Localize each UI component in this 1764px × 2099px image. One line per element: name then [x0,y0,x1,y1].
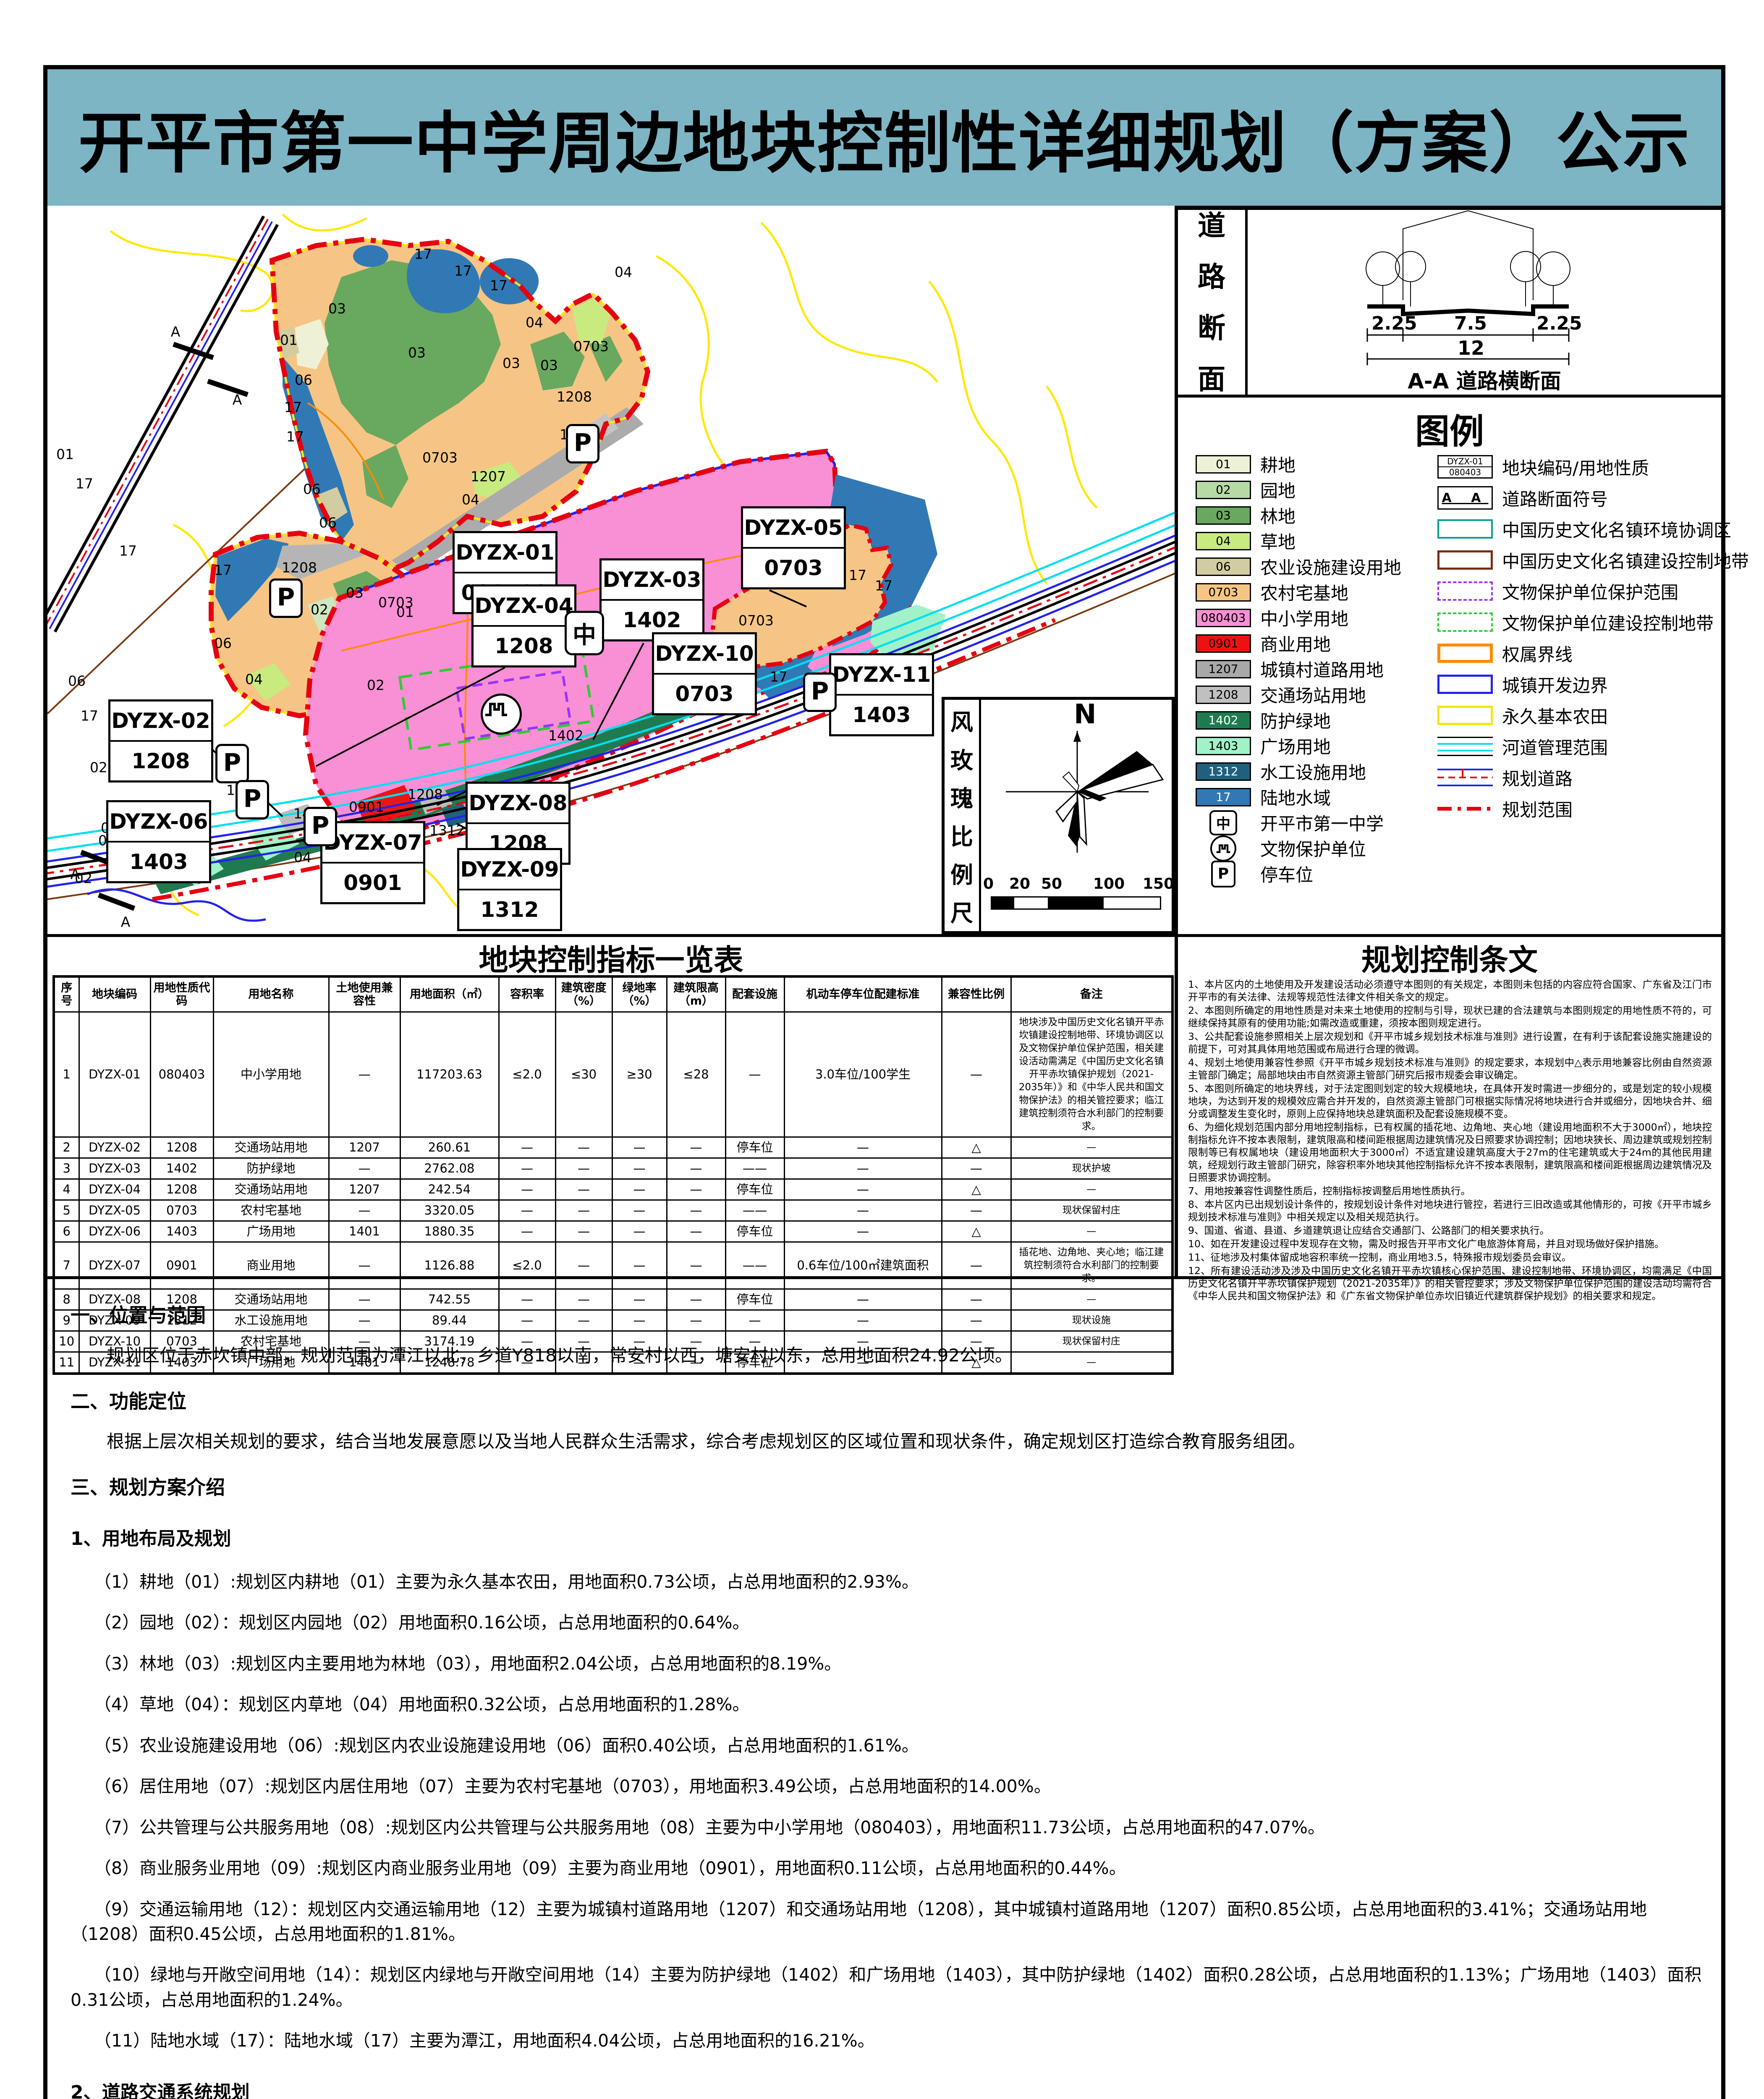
area-code-label: 01 [280,333,298,347]
dim-total-text: 12 [1458,337,1484,359]
area-code-label: 03 [328,302,346,316]
area-code-label: 1312 [429,824,465,838]
plot-code: DYZX-05 [743,508,844,549]
area-code-label: A [71,867,80,881]
heritage-protect-swatch [1437,581,1493,601]
legend-item-label: 水工设施用地 [1260,759,1366,784]
constr-control-swatch [1437,550,1493,570]
area-code-label: 0703 [573,340,609,353]
legend-item: 1403 广场用地 [1196,733,1437,759]
legend-title: 图例 [1178,403,1721,453]
legend-color-swatch: 1403 [1196,737,1251,755]
parking-icon: P [215,744,249,783]
plot-use-code: 0703 [654,675,755,713]
legend-item-label: 林地 [1260,503,1296,528]
legend-landuse-list: 01 耕地 02 园地 03 林地 [1196,451,1437,810]
title-band: 开平市第一中学周边地块控制性详细规划（方案）公示 [47,69,1721,210]
parking-icon: P [803,673,837,712]
legend-item: 02 园地 [1196,477,1437,503]
plot-use-code: 1208 [110,742,211,780]
plot-label-box: DYZX-02 1208 [108,699,213,783]
area-code-label: 17 [414,247,432,261]
landuse-subheading: 1、用地布局及规划 [71,1523,1704,1550]
road-subheading: 2、道路交通系统规划 [71,2077,1704,2099]
provision-item: 3、公共配套设施参照相关上层次规划和《开平市城乡规划技术标准与准则》进行设置，在… [1188,1030,1712,1055]
planning-map: 0103030303171717171706060604040407030703… [47,206,1175,934]
road-section-caption: A-A 道路横断面 [1248,364,1721,395]
wind-rose-panel-label: 风玫瑰比例尺 [945,700,981,931]
legend-color-swatch: 03 [1196,506,1251,525]
provision-item: 7、用地按兼容性调整性质后，控制指标按调整后用地性质执行。 [1188,1185,1712,1197]
area-code-label: 17 [284,400,302,414]
env-coord-swatch [1437,519,1493,539]
landuse-item: （2）园地（02）：规划区内园地（02）用地面积0.16公顷，占总用地面积的0.… [71,1610,1704,1635]
area-code-label: 06 [303,482,321,496]
area-code-label: 1402 [548,729,584,743]
plot-use-code: 1403 [108,843,209,881]
plot-use-code: 0703 [743,549,844,587]
provision-item: 8、本片区内已出规划设计条件的，按规划设计条件对地块进行管控，若进行三旧改造或其… [1188,1198,1712,1223]
table-row: 7DYZX-07 0901商业用地 —1126.88 ≤2.0— —— ——0.… [54,1242,1173,1289]
legend-item-parking: P 停车位 [1196,861,1437,887]
area-code-label: 03 [346,586,364,600]
stream-line [87,890,266,921]
indicator-column-header: 配套设施 [725,976,784,1012]
indicator-column-header: 序号 [54,976,79,1012]
area-code-label: 17 [286,430,304,444]
area-code-label: A [171,325,181,339]
section3-heading: 三、规划方案介绍 [71,1472,1704,1500]
provision-item: 10、如在开发建设过程中发现存在文物，需及时报告开平市文化广电旅游体育局，并且对… [1188,1238,1712,1250]
table-row: 4DYZX-04 1208交通场站用地 1207242.54 —— —— 停车位… [54,1179,1173,1200]
indicator-column-header: 用地面积（㎡） [400,976,499,1012]
landuse-item: （6）居住用地（07）:规划区内居住用地（07）主要为农村宅基地（0703），用… [71,1774,1704,1799]
indicator-column-header: 建筑限高（m） [667,976,725,1012]
legend-color-swatch: 0703 [1196,583,1251,602]
legend-color-swatch: 0901 [1196,634,1251,653]
legend-item: 0901 商业用地 [1196,631,1437,656]
heritage-legend-icon [1210,835,1236,861]
area-code-label: 02 [311,603,328,617]
indicator-column-header: 建筑密度（%） [555,976,612,1012]
area-code-label: 0703 [738,614,774,628]
indicator-column-header: 土地使用兼容性 [329,976,400,1012]
table-row: 2DYZX-02 1208交通场站用地 1207260.61 —— —— 停车位… [54,1137,1173,1158]
area-code-label: 03 [408,346,426,360]
area-code-label: 17 [490,279,508,293]
provision-item: 6、为细化规划范围内部分用地控制指标，已有权属的插花地、边角地、夹心地（建设用地… [1188,1121,1712,1184]
landuse-item: （11）陆地水域（17）：陆地水域（17）主要为潭江，用地面积4.04公顷，占总… [71,2028,1704,2053]
legend-item: 080403 中小学用地 [1196,605,1437,631]
plot-label-box: DYZX-03 1402 [599,558,704,641]
legend-item-heritage: 文物保护单位 [1196,835,1437,861]
provision-item: 9、国道、省道、县道、乡道建筑退让应结合交通部门、公路部门的相关要求执行。 [1188,1224,1712,1237]
planned-road-swatch [1437,768,1493,787]
plot-code: DYZX-08 [468,784,568,824]
dim-left-text: 2.25 [1371,313,1417,334]
provisions-list: 1、本片区内的土地使用及开发建设活动必须遵守本图则的有关规定，本图则未包括的内容… [1188,978,1712,1303]
ownership-swatch [1437,644,1493,663]
area-code-label: 04 [615,265,632,279]
legend-color-swatch: 1207 [1196,660,1251,678]
area-code-label: 04 [245,673,263,686]
area-code-label: 17 [214,563,232,577]
legend-item-label: 中小学用地 [1260,605,1348,631]
legend-item: 04 草地 [1196,528,1437,554]
plot-code: DYZX-10 [654,634,755,675]
legend-item: 03 林地 [1196,503,1437,528]
urban-boundary-swatch [1437,675,1493,694]
area-code-label: 01 [56,448,74,461]
section1-paragraph: 规划区位于赤坎镇中部，规划范围为潭江以北，乡道Y818以南，常安村以西，塘安村以… [71,1342,1704,1369]
landuse-item-list: （1）耕地（01）:规划区内耕地（01）主要为永久基本农田，用地面积0.73公顷… [71,1570,1704,2054]
legend-item-label: 农业设施建设用地 [1260,554,1401,579]
landuse-item: （5）农业设施建设用地（06）:规划区内农业设施建设用地（06）面积0.40公顷… [71,1733,1704,1758]
heritage-unit-icon [481,694,522,735]
north-label: N [1074,701,1097,730]
plot-label-box: DYZX-04 1208 [471,584,576,667]
scale-bar [991,896,1161,910]
area-code-label: 03 [540,359,558,372]
dim-mid-text: 7.5 [1454,313,1487,334]
legend-color-swatch: 02 [1196,481,1251,499]
area-code-label: 17 [119,544,137,558]
indicator-column-header: 绿地率（%） [612,976,667,1012]
indicator-column-header: 备注 [1011,976,1173,1012]
plot-label-box: DYZX-05 0703 [741,506,846,589]
section2-paragraph: 根据上层次相关规划的要求，结合当地发展意愿以及当地人民群众生活需求，综合考虑规划… [71,1428,1704,1455]
legend-item-label: 农村宅基地 [1260,579,1348,605]
indicator-table-title: 地块控制指标一览表 [47,937,1175,979]
area-code-label: 0703 [422,451,458,465]
area-code-label: A [121,915,131,929]
landuse-item: （10）绿地与开敞空间用地（14）：规划区内绿地与开敞空间用地（14）主要为防护… [71,1963,1704,2013]
plot-use-code: 0901 [322,864,423,902]
area-code-label: 04 [526,316,543,330]
legend-color-swatch: 17 [1196,788,1251,806]
plot-label-box: DYZX-11 1403 [829,653,934,736]
plot-label-box: DYZX-09 1312 [457,848,562,931]
wind-rose-scale-panel: 风玫瑰比例尺 N 0 20 50 [942,697,1175,934]
indicator-table-header-row: 序号地块编码用地性质代码用地名称土地使用兼容性用地面积（㎡）容积率建筑密度（%）… [54,976,1173,1012]
area-code-label: 1208 [557,390,592,404]
area-code-label: 06 [319,516,337,530]
area-code-label: 06 [295,373,312,387]
plot-use-code: 1312 [459,890,560,929]
road-section-panel: 道路断面 2.25 [1178,206,1721,398]
parking-icon: P [236,780,269,819]
wind-rose: N [981,701,1174,874]
parking-icon: P [269,578,303,618]
legend-item-label: 园地 [1260,477,1296,503]
area-code-label: 06 [68,674,86,688]
area-code-label: 1208 [282,561,317,575]
divider-map-right [1175,206,1178,934]
section-symbol-swatch: A A [1437,486,1493,510]
area-code-label: 17 [849,568,866,582]
indicator-column-header: 用地名称 [213,976,329,1012]
legend-panel: 图例 01 耕地 02 园地 [1178,398,1721,934]
plot-code: DYZX-01 [455,533,555,573]
area-code-label: 03 [503,356,520,370]
legend-item: 1208 交通场站用地 [1196,682,1437,707]
legend-item-label: 城镇村道路用地 [1260,656,1384,682]
plot-label-box: DYZX-06 1403 [106,800,211,883]
legend-item-school: 中 开平市第一中学 [1196,810,1437,835]
parking-icon: P [566,424,599,463]
legend-color-swatch: 1312 [1196,762,1251,781]
indicator-column-header: 兼容性比例 [942,976,1011,1012]
plot-code: DYZX-07 [322,823,423,864]
indicator-column-header: 容积率 [499,976,555,1012]
landuse-item: （1）耕地（01）:规划区内耕地（01）主要为永久基本农田，用地面积0.73公顷… [71,1570,1704,1594]
plot-code: DYZX-03 [602,560,702,601]
legend-color-swatch: 080403 [1196,609,1251,627]
section2-heading: 二、功能定位 [71,1386,1704,1414]
plot-code: DYZX-06 [108,802,209,843]
planning-scope-swatch [1437,799,1493,818]
area-code-label: 02 [90,761,107,775]
legend-item-plotcode: DYZX-01080403 地块编码/用地性质 [1437,451,1721,482]
right-column: 道路断面 2.25 [1178,206,1721,934]
legend-item-section-symbol: A A 道路断面符号 [1437,482,1721,513]
river-mgmt-swatch [1437,737,1493,756]
area-code-label: 17 [76,477,93,491]
legend-item-label: 商业用地 [1260,631,1331,656]
table-row: 3DYZX-03 1402防护绿地 —2762.08 —— —— ——— —现状… [54,1158,1173,1179]
provision-item: 4、规划土地使用兼容性参照《开平市城乡规划技术标准与准则》的规定要求，本规划中△… [1188,1056,1712,1081]
provision-item: 2、本图则所确定的用地性质是对未来土地使用的控制与引导，现状已建的合法建筑与本图… [1188,1004,1712,1029]
plot-code: DYZX-02 [110,701,211,742]
area-code-label: 04 [462,493,479,507]
legend-item: 1312 水工设施用地 [1196,759,1437,784]
area-code-label: 0901 [349,800,384,814]
plot-label-box: DYZX-10 0703 [652,632,757,715]
provision-item: 1、本片区内的土地使用及开发建设活动必须遵守本图则的有关规定，本图则未包括的内容… [1188,978,1712,1003]
indicator-column-header: 用地性质代码 [150,976,213,1012]
table-row: 5DYZX-05 0703农村宅基地 —3320.05 —— —— ——— —现… [54,1200,1173,1221]
landuse-item: （8）商业服务业用地（09）:规划区内商业服务业用地（09）主要为商业用地（09… [71,1856,1704,1881]
legend-item: 01 耕地 [1196,451,1437,477]
legend-item: 1402 防护绿地 [1196,707,1437,733]
farmland-swatch [1437,706,1493,725]
table-row: 1DYZX-01 080403中小学用地 —117203.63 ≤2.0≤30 … [54,1012,1173,1137]
school-legend-icon: 中 [1209,810,1237,835]
area-code-label: 01 [396,605,414,619]
dim-right-text: 2.25 [1536,313,1582,334]
provision-item: 12、所有建设活动涉及涉及中国历史文化名镇开平赤坎镇核心保护范围、建设控制地带、… [1188,1264,1712,1302]
plot-code: DYZX-09 [459,850,560,890]
landuse-item: （9）交通运输用地（12）：规划区内交通运输用地（12）主要为城镇村道路用地（1… [71,1897,1704,1947]
legend-color-swatch: 1402 [1196,711,1251,730]
parking-legend-icon: P [1211,861,1235,887]
legend-item-label: 交通场站用地 [1260,682,1366,707]
provision-item: 11、征地涉及村集体留成地容积率统一控制，商业用地3.5，特殊报市规划委员会审议… [1188,1251,1712,1264]
provisions-title: 规划控制条文 [1178,937,1721,979]
indicator-column-header: 地块编码 [79,976,150,1012]
legend-color-swatch: 06 [1196,557,1251,576]
plot-code: DYZX-11 [831,655,932,696]
bottom-section: 一、位置与范围 规划区位于赤坎镇中部，规划范围为潭江以北，乡道Y818以南，常安… [71,1300,1704,2099]
legend-color-swatch: 1208 [1196,686,1251,704]
planning-notice-page: { "page": { "title": "开平市第一中学周边地块控制性详细规划… [0,0,1764,2099]
area-code-label: 02 [367,678,385,692]
area-code-label: 17 [454,264,472,278]
divider-table-provisions [1175,934,1178,1276]
landuse-item: （3）林地（03）:规划区内主要用地为林地（03），用地面积2.04公顷，占总用… [71,1651,1704,1676]
legend-item-label: 广场用地 [1260,733,1331,759]
plot-use-code: 1403 [831,696,932,734]
legend-item-label: 草地 [1260,528,1296,554]
area-code-label: 17 [81,709,98,723]
parking-icon: P [304,807,337,846]
plot-code: DYZX-04 [474,586,574,627]
area-code-label: 1207 [471,470,506,484]
area-code-label: 1208 [408,788,443,801]
heritage-control-swatch [1437,612,1493,632]
legend-item: 1207 城镇村道路用地 [1196,656,1437,682]
page-title: 开平市第一中学周边地块控制性详细规划（方案）公示 [79,89,1691,186]
legend-item: 0703 农村宅基地 [1196,579,1437,605]
provision-item: 5、本图则所确定的地块界线，对于法定图则划定的较大规模地块，在具体开发时需进一步… [1188,1082,1712,1120]
legend-item-label: 耕地 [1260,451,1296,477]
plotcode-legend-swatch: DYZX-01080403 [1437,455,1493,479]
legend-item-label: 防护绿地 [1260,707,1331,733]
legend-color-swatch: 01 [1196,455,1251,474]
legend-item: 06 农业设施建设用地 [1196,554,1437,579]
area-code-label: 17 [875,579,892,593]
table-row: 6DYZX-06 1403广场用地 14011880.35 —— —— 停车位—… [54,1221,1173,1242]
legend-item-label: 陆地水域 [1260,784,1331,810]
plot-use-code: 1208 [474,627,574,665]
document-frame: 开平市第一中学周边地块控制性详细规划（方案）公示 [43,65,1725,2099]
area-code-label: 17 [770,670,788,684]
road-section-panel-label: 道路断面 [1178,206,1248,395]
indicator-column-header: 机动车停车位配建标准 [784,976,942,1012]
legend-color-swatch: 04 [1196,532,1251,550]
legend-item: 17 陆地水域 [1196,784,1437,810]
section1-heading: 一、位置与范围 [71,1300,1704,1328]
area-code-label: 06 [214,636,232,650]
landuse-item: （4）草地（04）：规划区内草地（04）用地面积0.32公顷，占总用地面积的1.… [71,1692,1704,1717]
school-icon: 中 [565,611,604,655]
area-code-label: 04 [294,851,311,864]
landuse-item: （7）公共管理与公共服务用地（08）:规划区内公共管理与公共服务用地（08）主要… [71,1815,1704,1840]
area-code-label: A [233,393,242,407]
